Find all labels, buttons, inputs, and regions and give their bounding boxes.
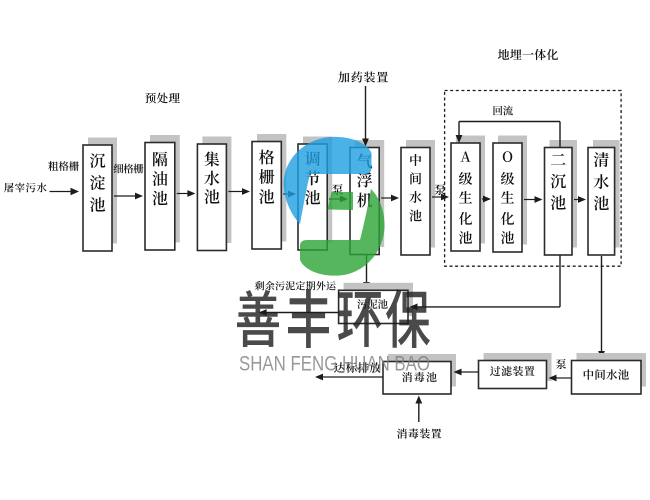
svg-text:SHAN FENG HUAN BAO: SHAN FENG HUAN BAO [239,352,430,376]
